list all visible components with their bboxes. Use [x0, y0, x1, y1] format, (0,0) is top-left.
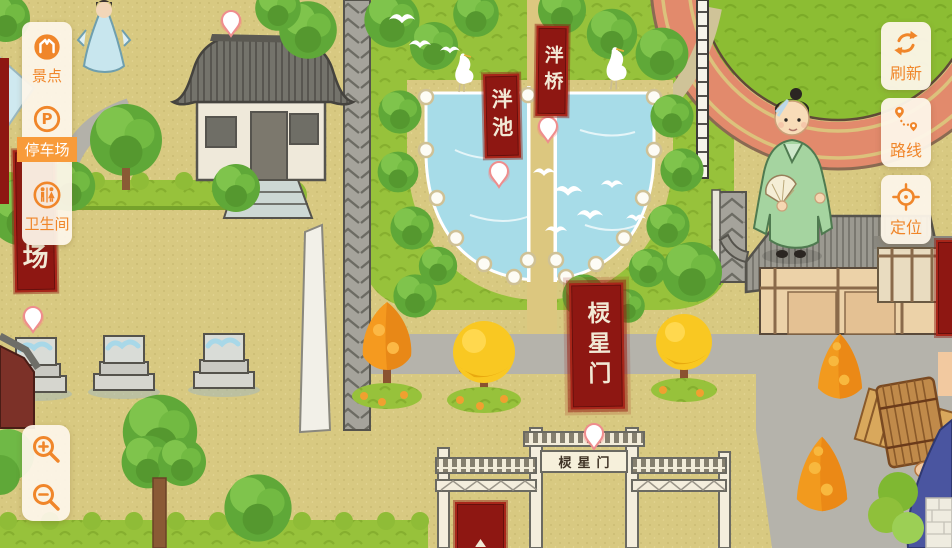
edge-banner-strip	[0, 58, 9, 204]
route-button[interactable]: 路线	[881, 98, 931, 167]
locate-icon	[891, 182, 921, 212]
action-button-label: 刷新	[890, 60, 922, 84]
map-canvas[interactable]	[0, 0, 952, 548]
refresh-icon	[891, 28, 921, 58]
route-icon	[891, 105, 921, 135]
restroom-icon	[32, 180, 62, 210]
scenic-spot-icon	[32, 32, 62, 62]
zoom-out-icon	[29, 480, 63, 514]
zoom-controls	[22, 425, 70, 521]
scenic-map-app: 泮桥 泮池 棂星门 场 棂星门 景点 P 停车场 卫生间	[0, 0, 952, 548]
zoom-in-button[interactable]	[22, 425, 70, 473]
sidebar-item-label-selected: 停车场	[17, 137, 77, 162]
banner-right-edge	[936, 240, 952, 336]
locate-button[interactable]: 定位	[881, 175, 931, 244]
sidebar-item-parking[interactable]: P 停车场	[22, 96, 72, 170]
zoom-out-button[interactable]	[22, 473, 70, 521]
sidebar-item-scenic-spots[interactable]: 景点	[22, 22, 72, 96]
action-button-label: 路线	[890, 137, 922, 161]
action-button-label: 定位	[890, 214, 922, 238]
sidebar-item-restroom[interactable]: 卫生间	[22, 170, 72, 244]
banner-lingxing-gate[interactable]: 棂星门	[569, 283, 625, 410]
banner-pan-bridge[interactable]: 泮桥	[535, 26, 568, 116]
banner-partial-bottom[interactable]	[455, 502, 506, 548]
parking-icon: P	[32, 104, 62, 134]
banner-pan-pool[interactable]: 泮池	[483, 74, 521, 159]
svg-text:P: P	[42, 110, 53, 128]
lingxing-gate-plaque: 棂星门	[540, 450, 628, 473]
stone-steles	[0, 334, 260, 401]
sidebar-item-label: 景点	[32, 65, 62, 86]
poi-filter-panel: 景点 P 停车场 卫生间	[22, 22, 72, 245]
sidebar-item-label: 卫生间	[24, 213, 69, 234]
path-chevron	[344, 0, 370, 430]
zoom-in-icon	[29, 432, 63, 466]
refresh-button[interactable]: 刷新	[881, 22, 931, 90]
fence	[697, 0, 708, 178]
partial-character-mark	[475, 539, 486, 547]
